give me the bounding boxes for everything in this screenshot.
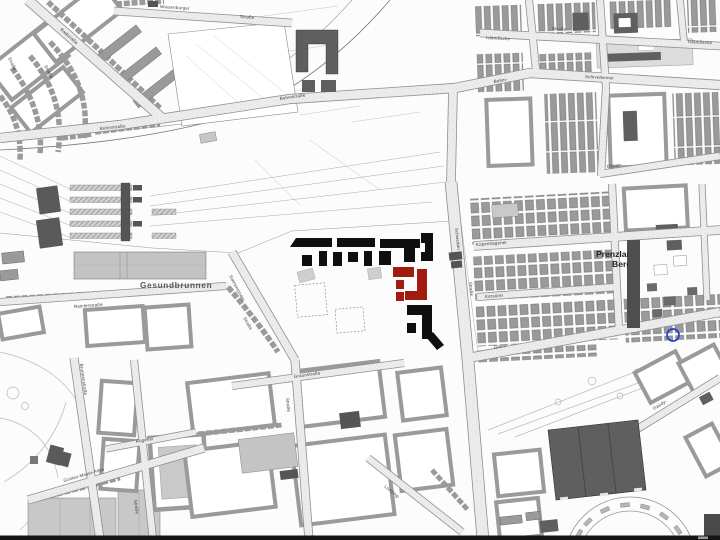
sports-hall: [548, 420, 646, 500]
bottom-border-bar: [0, 536, 720, 540]
label-strasse-top: Straße: [240, 14, 255, 20]
label-strasse-ne: Straße: [552, 26, 567, 32]
station-hall: [74, 252, 206, 279]
district-label-occluder-building: [628, 248, 640, 272]
map-canvas: Gesundbrunnen Prenzlauer Berg Behmstraße…: [0, 0, 720, 540]
site-plan-map: Gesundbrunnen Prenzlauer Berg Behmstraße…: [0, 0, 720, 540]
site-light-building-b: [367, 267, 381, 280]
label-gesundbrunnen: Gesundbrunnen: [140, 281, 212, 290]
